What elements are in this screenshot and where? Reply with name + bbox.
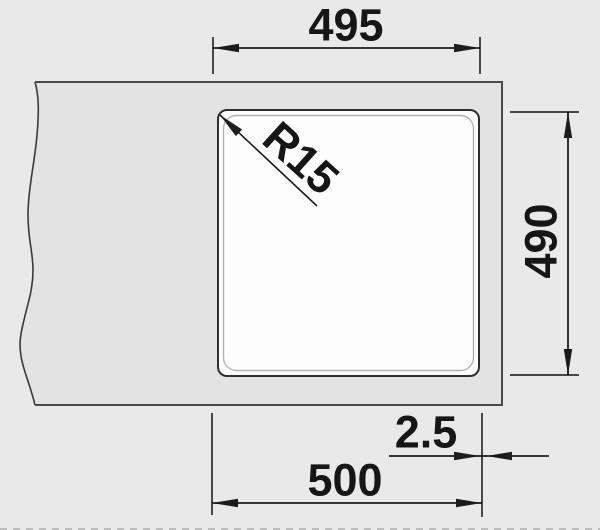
arrowhead-500-left xyxy=(212,499,238,507)
arrowhead-490-bottom xyxy=(564,349,572,375)
arrowhead-495-left xyxy=(213,44,239,52)
drawing-linework xyxy=(0,0,600,530)
arrowhead-2-5-left xyxy=(454,452,480,460)
dim-label-side-height: 490 xyxy=(519,203,564,278)
dim-label-top-width: 495 xyxy=(308,3,383,48)
arrowhead-500-right xyxy=(456,499,482,507)
dim-label-overall-width: 500 xyxy=(307,458,382,503)
arrowhead-490-top xyxy=(564,112,572,138)
dim-label-edge-gap: 2.5 xyxy=(395,410,458,455)
arrowhead-2-5-right xyxy=(486,452,512,460)
drawing-canvas: 495 490 R15 2.5 500 xyxy=(0,0,600,530)
arrowhead-495-right xyxy=(454,44,480,52)
